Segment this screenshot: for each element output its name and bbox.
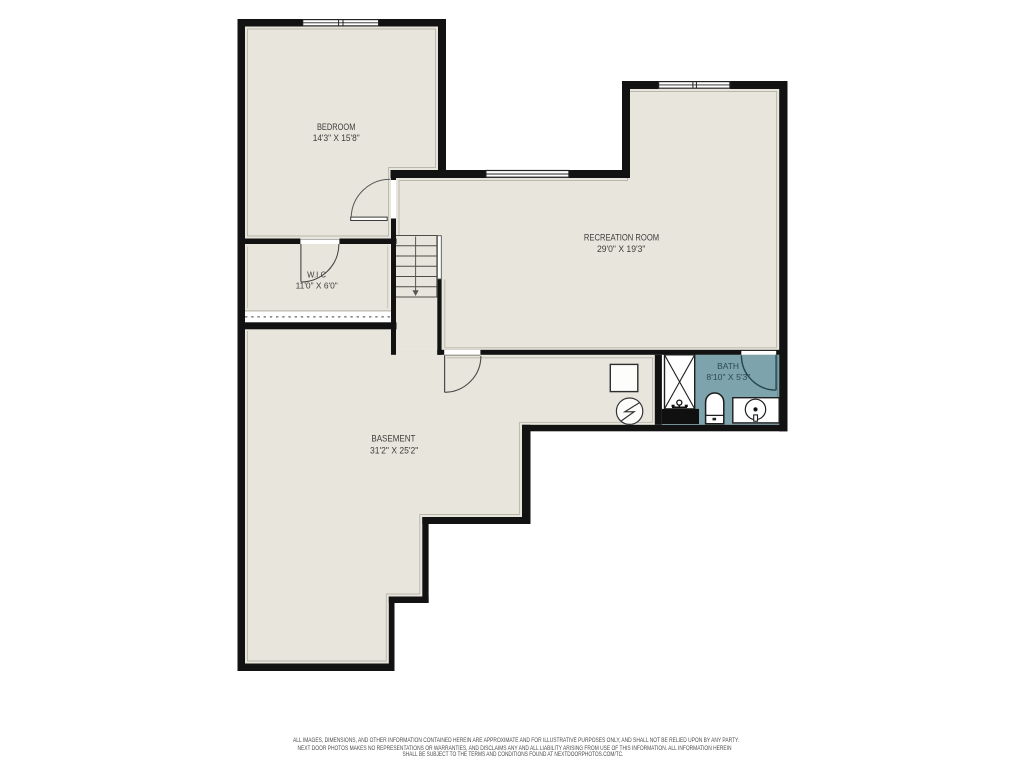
svg-text:W.I.C: W.I.C [307, 269, 326, 279]
svg-text:BASEMENT: BASEMENT [371, 433, 416, 443]
svg-text:BEDROOM: BEDROOM [317, 122, 356, 132]
svg-text:RECREATION ROOM: RECREATION ROOM [584, 232, 659, 242]
svg-text:31'2" X 25'2": 31'2" X 25'2" [370, 445, 418, 455]
svg-text:11'0" X 6'0": 11'0" X 6'0" [296, 281, 338, 291]
svg-text:BATH: BATH [717, 361, 739, 371]
svg-text:14'3" X 15'8": 14'3" X 15'8" [313, 133, 360, 143]
svg-text:ALL IMAGES, DIMENSIONS, AND OT: ALL IMAGES, DIMENSIONS, AND OTHER INFORM… [293, 737, 739, 744]
svg-text:SHALL BE SUBJECT TO THE TERMS: SHALL BE SUBJECT TO THE TERMS AND CONDIT… [403, 751, 624, 758]
svg-text:8'10" X 5'3": 8'10" X 5'3" [706, 372, 750, 382]
svg-text:29'0" X 19'3": 29'0" X 19'3" [597, 244, 646, 254]
